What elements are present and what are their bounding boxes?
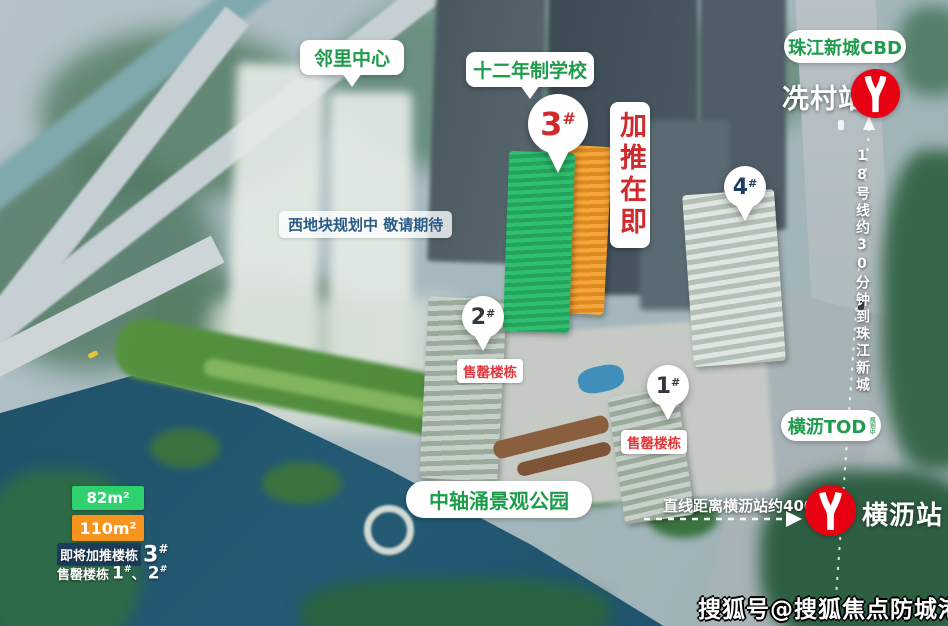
- legend-upcoming-tag: 即将加推楼栋: [57, 543, 141, 566]
- legend-soldout-number-2: 2#: [148, 565, 168, 583]
- trees-right-edge: [882, 150, 948, 470]
- legend-separator: 、: [132, 564, 145, 583]
- label-text: 中轴涌景观公园: [429, 485, 569, 514]
- marker-circle: 4#: [724, 166, 766, 208]
- line18-note: 18号线约30分钟到珠江新城: [855, 148, 869, 394]
- sohu-watermark: 搜狐号@搜狐焦点防城港站: [698, 590, 948, 624]
- marker-circle: 1#: [647, 365, 689, 407]
- hash-suffix: #: [160, 564, 168, 575]
- marker-building-1: 1#: [647, 365, 689, 407]
- number: 1: [112, 563, 124, 583]
- label-text: 邻里中心: [314, 44, 390, 71]
- marker-building-3: 3#: [528, 94, 588, 154]
- sold-out-label-building-1: 售罄楼栋: [621, 430, 687, 454]
- building-number: 3: [540, 105, 562, 143]
- hash-suffix: #: [124, 564, 132, 575]
- building-number: 4: [733, 175, 748, 200]
- label-text: 横沥TOD: [788, 413, 867, 439]
- metro-logo-icon: [851, 69, 900, 118]
- marker-circle: 3#: [528, 94, 588, 154]
- legend-soldout-prefix: 售罄楼栋: [57, 564, 109, 583]
- legend-swatch-82: 82m²: [72, 486, 144, 510]
- trees-top-right: [898, 6, 948, 96]
- label-hengli-tod: 横沥TOD 规划中: [781, 410, 881, 441]
- label-neighborhood-center: 邻里中心: [300, 40, 404, 75]
- label-text: 十二年制学校: [473, 56, 587, 83]
- building-number: 2: [471, 305, 486, 330]
- label-hengli-station: 横沥站: [862, 495, 943, 532]
- label-text: 珠江新城CBD: [788, 34, 902, 60]
- label-park: 中轴涌景观公园: [406, 481, 592, 518]
- building-number: 1: [656, 374, 671, 399]
- marker-building-4: 4#: [724, 166, 766, 208]
- marker-circle: 2#: [462, 296, 504, 338]
- marker-building-2: 2#: [462, 296, 504, 338]
- park-roundabout: [364, 505, 414, 555]
- hash-suffix: #: [562, 109, 575, 128]
- legend-area-label: 82m²: [86, 489, 129, 507]
- river-bank-bottom: [300, 578, 610, 626]
- park-tree: [262, 462, 342, 504]
- building-3-green-units: [503, 151, 575, 333]
- aerial-site-map: 邻里中心 十二年制学校 珠江新城CBD 冼村站 3# 加推在即 4# 西地块规划…: [0, 0, 948, 626]
- car: [838, 120, 844, 130]
- launch-imminent-banner: 加推在即: [610, 102, 650, 248]
- label-subtext: 规划中: [868, 417, 874, 435]
- label-cbd: 珠江新城CBD: [784, 30, 906, 63]
- hash-suffix: #: [158, 542, 168, 556]
- number: 2: [148, 563, 160, 583]
- park-tree: [150, 428, 220, 468]
- legend-soldout-number-1: 1#: [112, 565, 132, 583]
- sold-out-label-building-2: 售罄楼栋: [457, 359, 523, 383]
- hash-suffix: #: [486, 307, 495, 320]
- metro-logo-icon: [805, 485, 856, 536]
- label-west-plot: 西地块规划中 敬请期待: [279, 211, 452, 238]
- label-school: 十二年制学校: [466, 52, 594, 87]
- hash-suffix: #: [671, 376, 680, 389]
- legend-soldout-line: 售罄楼栋 1# 、 2#: [57, 564, 167, 583]
- legend-swatch-110: 110m²: [72, 515, 144, 541]
- hash-suffix: #: [748, 177, 757, 190]
- legend-area-label: 110m²: [79, 519, 136, 538]
